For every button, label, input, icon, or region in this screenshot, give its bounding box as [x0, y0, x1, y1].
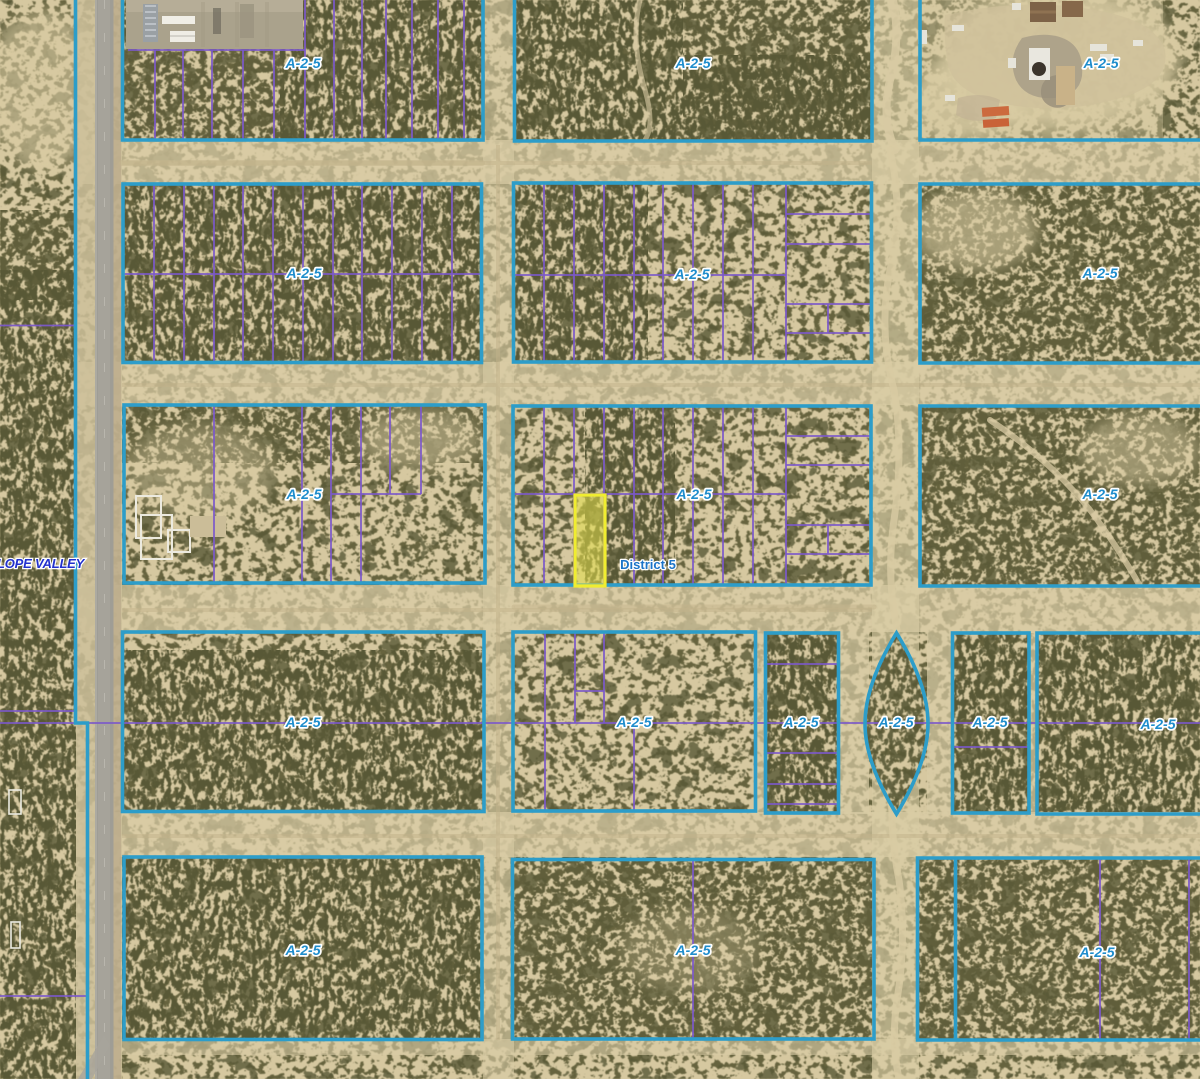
svg-text:A-2-5: A-2-5: [1078, 944, 1114, 960]
svg-text:A-2-5: A-2-5: [674, 942, 710, 958]
svg-text:A-2-5: A-2-5: [284, 942, 320, 958]
svg-text:A-2-5: A-2-5: [673, 266, 709, 282]
svg-text:District 5: District 5: [620, 557, 676, 572]
svg-text:A-2-5: A-2-5: [1081, 265, 1117, 281]
svg-text:A-2-5: A-2-5: [284, 55, 320, 71]
svg-text:A-2-5: A-2-5: [1082, 55, 1118, 71]
svg-text:A-2-5: A-2-5: [1139, 716, 1175, 732]
svg-text:A-2-5: A-2-5: [877, 714, 913, 730]
svg-text:A-2-5: A-2-5: [285, 486, 321, 502]
svg-text:A-2-5: A-2-5: [1081, 486, 1117, 502]
svg-text:LOPE VALLEY: LOPE VALLEY: [0, 556, 86, 571]
svg-text:A-2-5: A-2-5: [284, 714, 320, 730]
svg-text:A-2-5: A-2-5: [615, 714, 651, 730]
svg-text:A-2-5: A-2-5: [971, 714, 1007, 730]
svg-text:A-2-5: A-2-5: [782, 714, 818, 730]
svg-text:A-2-5: A-2-5: [674, 55, 710, 71]
svg-text:A-2-5: A-2-5: [675, 486, 711, 502]
svg-text:A-2-5: A-2-5: [285, 265, 321, 281]
